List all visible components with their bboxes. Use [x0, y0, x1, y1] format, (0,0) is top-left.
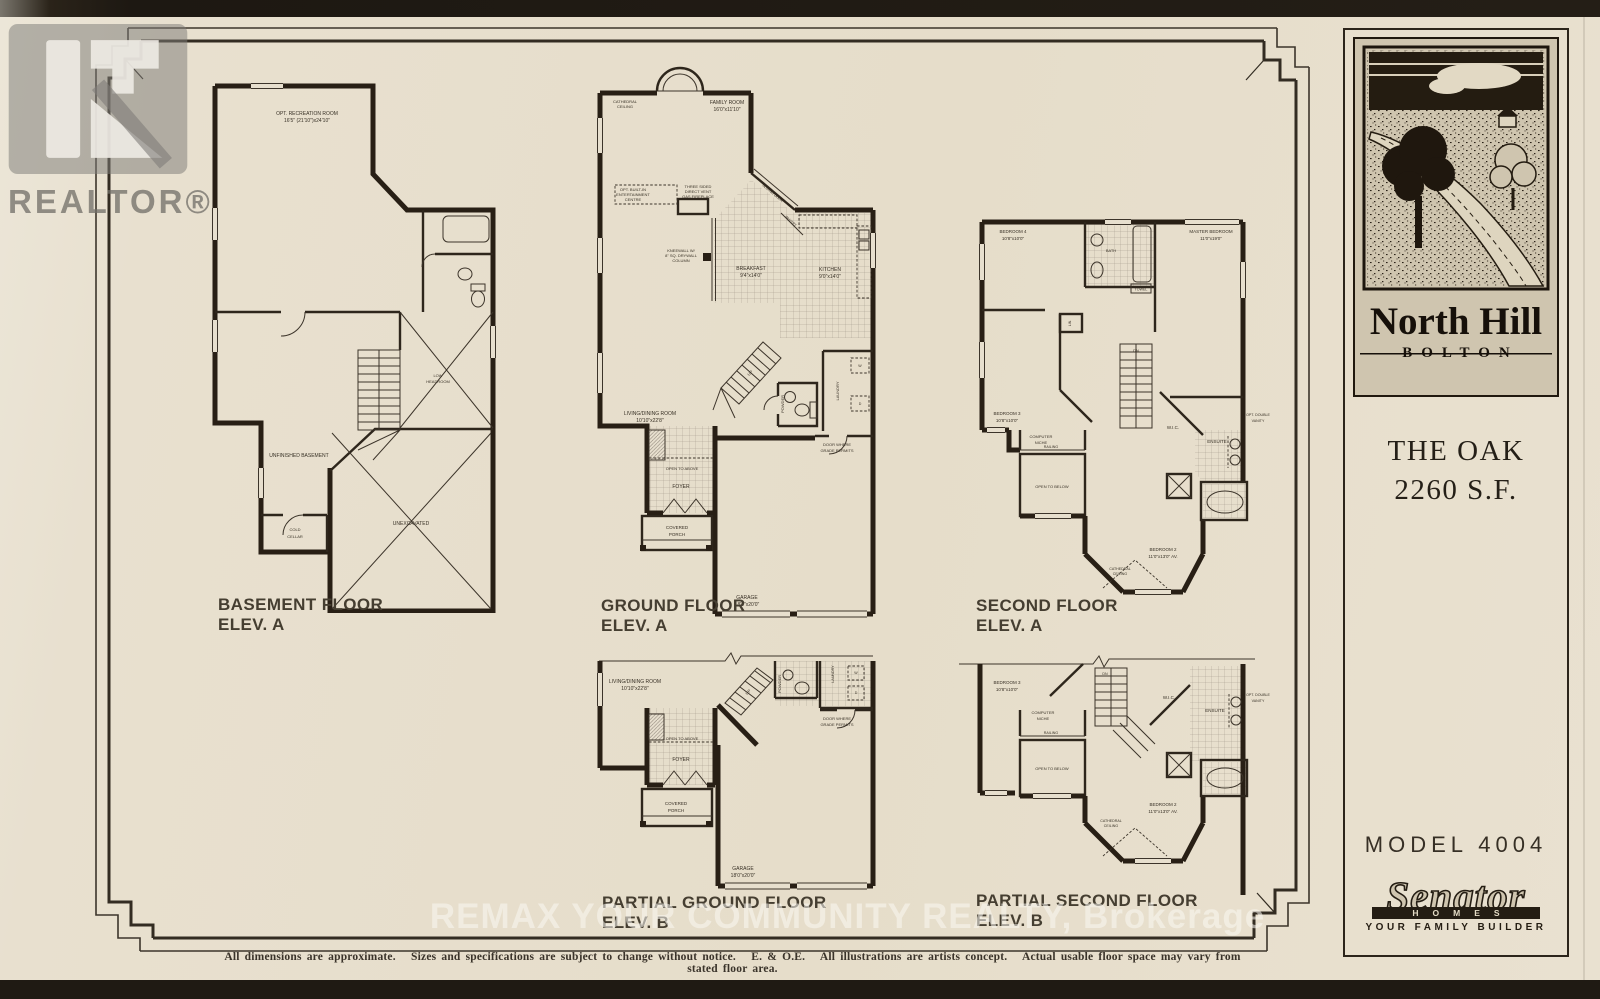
master-label: MASTER BEDROOM — [1189, 229, 1233, 234]
pg-garage-dims: 18'0"x20'0" — [731, 873, 756, 879]
ground-powder-fixtures — [785, 392, 818, 419]
pg-powder-label: POWDER — [777, 675, 782, 693]
pg-door-grade-2: GRADE PERMITS — [820, 722, 853, 727]
basement-caption-line1: BASEMENT FLOOR — [218, 595, 383, 615]
living-dims: 10'10"x22'8" — [636, 418, 664, 424]
bedroom2-label: BEDROOM 2 — [1149, 547, 1177, 552]
open-above-label: OPEN TO ABOVE — [666, 466, 699, 471]
sidebar-panel: North Hill BOLTON THE OAK 2260 S.F. MODE… — [1343, 28, 1569, 957]
builder-homes-bar: HOMES — [1372, 907, 1540, 919]
powder-label: POWDER — [780, 395, 785, 413]
bedroom3-dims: 10'8"x10'0" — [996, 418, 1019, 423]
pg-open-above-label: OPEN TO ABOVE — [666, 736, 699, 741]
ps-cathedral-2: CEILING — [1104, 824, 1119, 828]
builder-tagline: YOUR FAMILY BUILDER — [1345, 922, 1567, 933]
ps-wic-label: W.I.C. — [1163, 695, 1175, 700]
pg-dryer-label: D — [855, 691, 858, 695]
scan-background: REALTOR® — [0, 0, 1600, 999]
psecond-windows — [985, 791, 1171, 864]
railing-label: RAILING — [1044, 445, 1059, 449]
fireplace-label-3: GAS FIREPLACE — [682, 194, 714, 199]
ps-bedroom2-dims: 11'0"x13'0" AV. — [1148, 809, 1177, 814]
low-headroom-label-1: LOW — [433, 373, 442, 378]
master-dims: 11'0"x19'0" — [1200, 236, 1222, 241]
pg-garage-label: GARAGE — [732, 866, 754, 872]
basement-stairs — [358, 350, 400, 460]
partial-second-floor-plan: BEDROOM 3 10'8"x10'0" COMPUTER NICHE RAI… — [945, 650, 1270, 895]
ground-stairs — [713, 342, 781, 418]
ground-tiled-floors — [649, 180, 871, 513]
cathedral2-label-2: CEILING — [1113, 572, 1128, 576]
community-location: BOLTON — [1360, 345, 1552, 362]
pg-living-label: LIVING/DINING ROOM — [609, 679, 661, 685]
door-grade-label-1: DOOR WHERE — [823, 442, 851, 447]
computer-niche-label-1: COMPUTER — [1030, 434, 1053, 439]
breakfast-label: BREAKFAST — [736, 266, 765, 272]
pg-porch-label-2: PORCH — [668, 808, 684, 813]
wic-label: W.I.C. — [1167, 425, 1179, 430]
basement-caption: BASEMENT FLOOR ELEV. A — [218, 595, 383, 636]
unexcavated-label: UNEXCAVATED — [393, 521, 430, 527]
basement-bath-fixtures — [443, 216, 489, 307]
rec-room-label: OPT. RECREATION ROOM — [276, 111, 338, 117]
realtor-r-logo-icon — [8, 24, 188, 174]
pg-door-grade-1: DOOR WHERE — [823, 716, 851, 721]
pg-living-dims: 10'10"x22'8" — [621, 686, 649, 692]
cold-cellar-label-1: COLD — [289, 527, 300, 532]
porch-label-2: PORCH — [669, 532, 685, 537]
psecond-stairs — [1095, 668, 1155, 758]
second-stairs — [1120, 344, 1152, 428]
realtor-watermark: REALTOR® — [8, 24, 223, 221]
ps-bedroom2-label: BEDROOM 2 — [1149, 802, 1177, 807]
kitchen-label: KITCHEN — [819, 267, 841, 273]
pg-porch-label-1: COVERED — [665, 801, 688, 806]
bedroom4-label: BEDROOM 4 — [999, 229, 1027, 234]
ground-caption: GROUND FLOOR ELEV. A — [601, 596, 746, 637]
washer-label: W — [858, 364, 862, 368]
family-room-dims: 16'0"x11'10" — [713, 107, 740, 113]
ps-open-below-label: OPEN TO BELOW — [1035, 766, 1069, 771]
ground-caption-line1: GROUND FLOOR — [601, 596, 746, 616]
ps-opt-vanity-2: VANITY — [1252, 699, 1265, 703]
ps-dn-label: DN — [1102, 672, 1108, 676]
porch-label-1: COVERED — [666, 525, 689, 530]
bedroom2-dims: 11'0"x13'0" AV. — [1148, 554, 1177, 559]
low-headroom-label-2: HEADROOM — [426, 379, 450, 384]
model-name: THE OAK — [1345, 432, 1567, 471]
kneewall-label-3: COLUMN — [672, 258, 689, 263]
pg-foyer-label: FOYER — [672, 757, 690, 763]
breakfast-dims: 9'4"x14'0" — [740, 273, 762, 279]
dn-label: DN — [1133, 348, 1139, 353]
ps-railing-label: RAILING — [1044, 731, 1059, 735]
basement-caption-line2: ELEV. A — [218, 615, 383, 635]
basement-bracing — [332, 312, 493, 609]
disclaimer-text: All dimensions are approximate. Sizes an… — [210, 951, 1255, 975]
second-caption-line1: SECOND FLOOR — [976, 596, 1118, 616]
remax-watermark: REMAX YOUR COMMUNITY REALTY, Brokerage — [395, 897, 1300, 937]
entertainment-label-3: CENTRE — [625, 197, 642, 202]
dryer-label: D — [859, 402, 862, 406]
pg-washer-label: W — [854, 671, 858, 675]
north-hill-illustration-icon — [1361, 44, 1551, 292]
rec-room-dims: 16'5" (21'10")x24'10" — [284, 118, 330, 124]
laundry-label: LAUNDRY — [835, 381, 840, 400]
ensuite-label: ENSUITE — [1207, 439, 1227, 444]
family-room-label: FAMILY ROOM — [710, 100, 744, 106]
basement-room-labels: OPT. RECREATION ROOM 16'5" (21'10")x24'1… — [269, 111, 450, 539]
cold-cellar-label-2: CELLAR — [287, 534, 303, 539]
partial-ground-floor-plan: LIVING/DINING ROOM 10'10"x22'8" POWDER L… — [585, 648, 885, 893]
ps-bedroom3-dims: 10'8"x10'0" — [996, 687, 1019, 692]
living-label: LIVING/DINING ROOM — [624, 411, 676, 417]
ground-room-labels: CATHEDRAL CEILING FAMILY ROOM 16'0"x11'1… — [613, 99, 862, 608]
second-caption: SECOND FLOOR ELEV. A — [976, 596, 1118, 637]
kitchen-dims: 9'0"x14'0" — [819, 274, 841, 280]
cathedral2-label-1: CATHEDRAL — [1109, 567, 1131, 571]
cathedral-label-2: CEILING — [617, 104, 633, 109]
bedroom4-dims: 10'8"x10'0" — [1002, 236, 1025, 241]
north-hill-logo: North Hill BOLTON — [1353, 37, 1559, 397]
second-floor-plan: BEDROOM 4 10'8"x10'0" BATH TOWEL MASTER … — [945, 192, 1270, 637]
senator-logo: Senator HOMES YOUR FAMILY BUILDER — [1345, 876, 1567, 933]
realtor-watermark-text: REALTOR® — [8, 183, 223, 221]
model-title-block: THE OAK 2260 S.F. — [1345, 432, 1567, 510]
bath-label: BATH — [1106, 248, 1116, 253]
linen-label: LIN. — [1068, 320, 1072, 327]
ps-ensuite-label: ENSUITE — [1205, 708, 1225, 713]
open-below-label: OPEN TO BELOW — [1035, 484, 1069, 489]
unfinished-basement-label: UNFINISHED BASEMENT — [269, 453, 328, 459]
opt-vanity-label-2: VANITY — [1252, 419, 1265, 423]
opt-vanity-label-1: OPT. DOUBLE — [1246, 413, 1270, 417]
scanned-floorplan-photo: { "branding": { "realtor_watermark": "RE… — [0, 0, 1600, 999]
model-area: 2260 S.F. — [1345, 471, 1567, 510]
ps-cathedral-1: CATHEDRAL — [1100, 819, 1122, 823]
ground-closet — [649, 430, 665, 460]
pground-closet — [649, 714, 664, 740]
ps-computer-2: NICHE — [1037, 716, 1050, 721]
pground-windows — [598, 673, 603, 706]
ps-computer-1: COMPUTER — [1032, 710, 1055, 715]
builder-word: HOMES — [1398, 908, 1513, 918]
community-name: North Hill — [1360, 299, 1552, 344]
second-caption-line2: ELEV. A — [976, 616, 1118, 636]
ps-opt-vanity-1: OPT. DOUBLE — [1246, 693, 1270, 697]
foyer-label: FOYER — [672, 484, 690, 490]
basement-floor-plan: OPT. RECREATION ROOM 16'5" (21'10")x24'1… — [195, 68, 525, 613]
basement-windows — [213, 84, 496, 499]
bedroom3-label: BEDROOM 3 — [993, 411, 1021, 416]
psecond-tiled-floors — [1190, 666, 1247, 794]
towel-label: TOWEL — [1135, 288, 1148, 292]
basement-walls — [215, 86, 493, 611]
ground-floor-plan: CATHEDRAL CEILING FAMILY ROOM 16'0"x11'1… — [585, 58, 885, 653]
pg-laundry-label: LAUNDRY — [831, 665, 835, 683]
model-number: MODEL 4004 — [1345, 832, 1567, 858]
ps-bedroom3-label: BEDROOM 3 — [993, 680, 1021, 685]
door-grade-label-2: GRADE PERMITS — [820, 448, 853, 453]
ground-caption-line2: ELEV. A — [601, 616, 746, 636]
